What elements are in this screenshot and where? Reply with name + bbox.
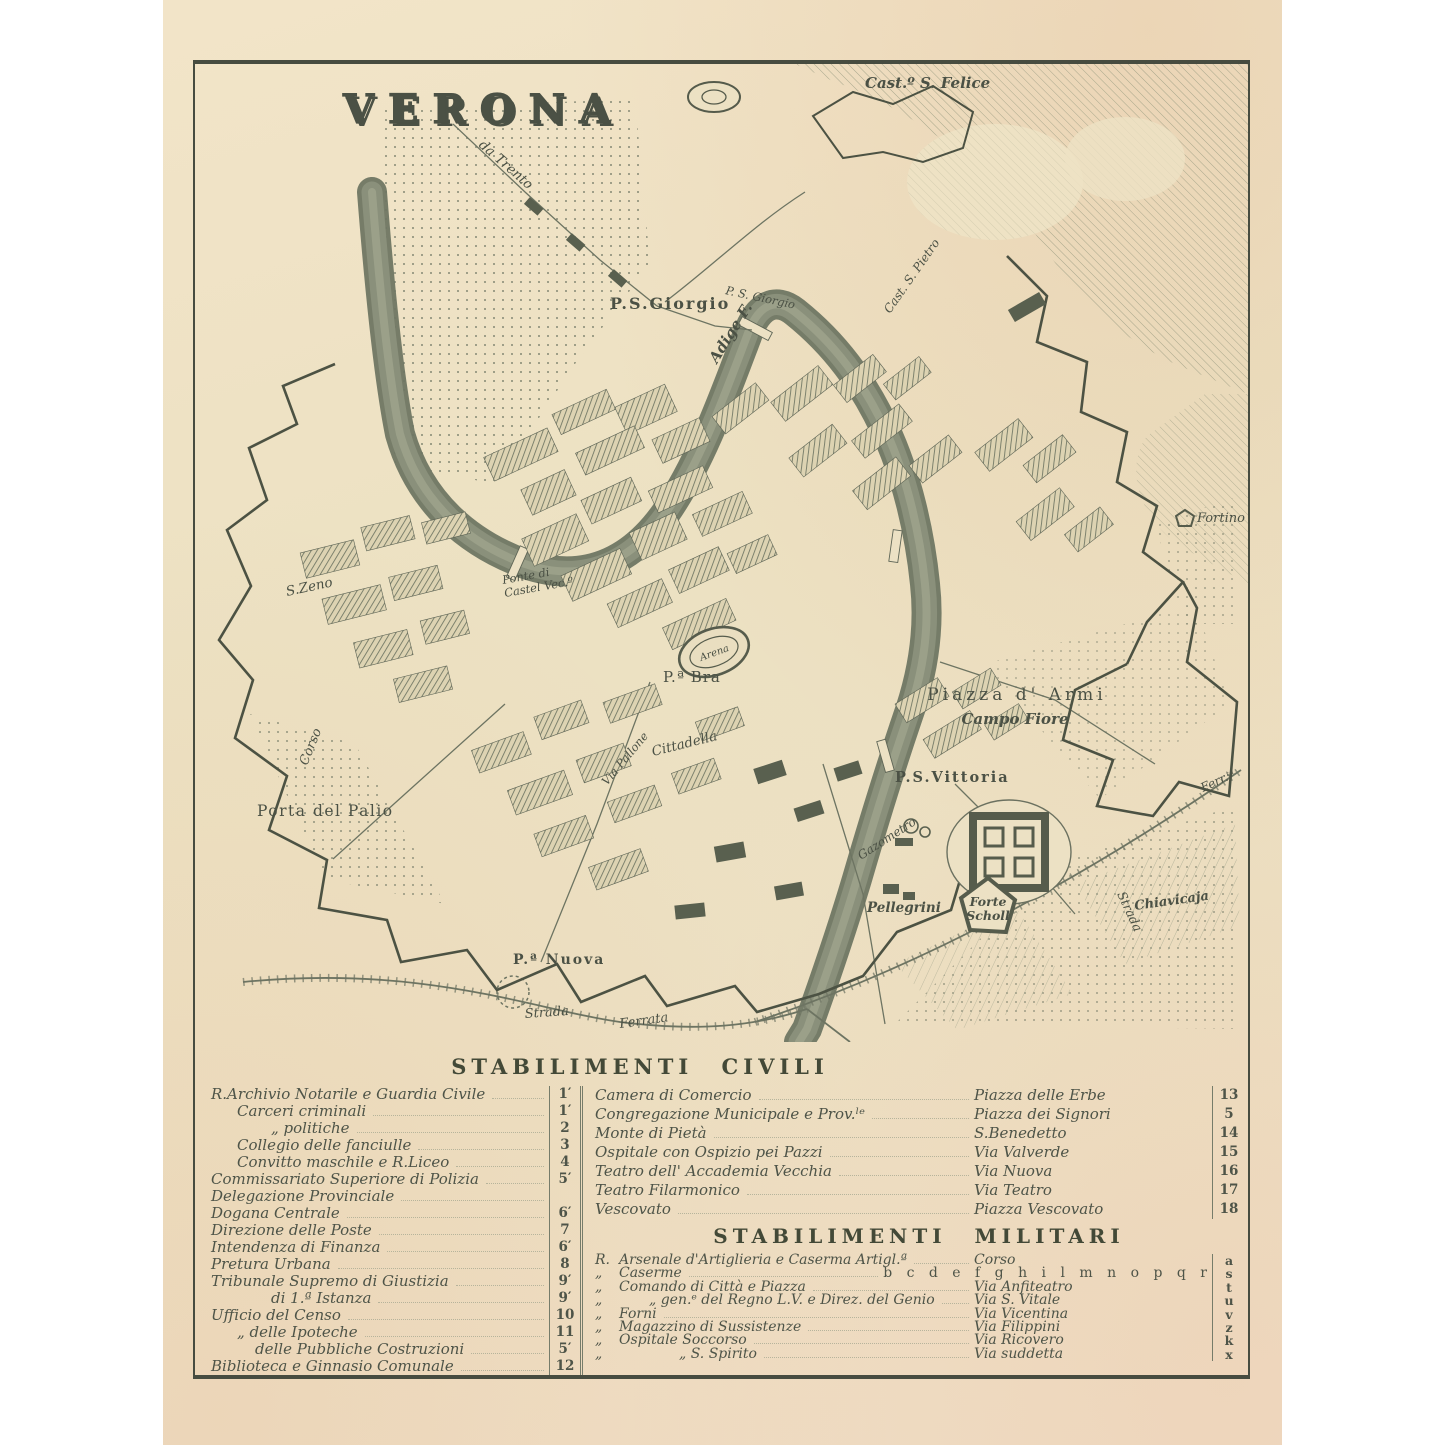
legend-row: Delegazione Provinciale: [211, 1188, 583, 1205]
map-label-fortino: Fortino: [1196, 511, 1245, 526]
dotted-leader: [357, 1132, 544, 1133]
map-label-campo-fiore: Campo Fiore: [961, 710, 1068, 728]
legend-item-label: di 1.ª Istanza: [211, 1290, 371, 1307]
dotted-leader: [678, 1213, 969, 1214]
legend-item-label: Carceri criminali: [211, 1103, 366, 1120]
legend-item-number: 9′: [549, 1273, 583, 1290]
dotted-leader: [808, 1330, 969, 1331]
dotted-leader: [387, 1251, 544, 1252]
legend-row: Teatro FilarmonicoVia Teatro17: [595, 1181, 1245, 1200]
legend-row: Camera di ComercioPiazza delle Erbe13: [595, 1086, 1245, 1105]
legend-item-label: Commissariato Superiore di Polizia: [211, 1171, 479, 1188]
legend-item-number: 15: [1212, 1143, 1245, 1162]
legend-item-number: z: [1212, 1321, 1245, 1334]
dotted-leader: [689, 1276, 878, 1277]
dotted-leader: [418, 1149, 544, 1150]
dotted-leader: [664, 1317, 969, 1318]
legend-row: Biblioteca e Ginnasio Comunale12: [211, 1358, 583, 1375]
legend-item-label: Camera di Comercio: [595, 1086, 752, 1105]
legend-item-number: 3: [549, 1137, 583, 1154]
legend-item-place: Via suddetta: [974, 1348, 1212, 1361]
legend-item-label: R.Archivio Notarile e Guardia Civile: [211, 1086, 485, 1103]
dotted-leader: [401, 1200, 544, 1201]
legend-item-number: 12: [549, 1358, 583, 1375]
map-label-ps-giorgio: P.S.Giorgio: [610, 294, 730, 313]
dotted-leader: [813, 1290, 969, 1291]
legend-row: di 1.ª Istanza9′: [211, 1290, 583, 1307]
dotted-leader: [347, 1217, 544, 1218]
legend-item-number: a: [1212, 1254, 1245, 1267]
legend-item-number: [549, 1188, 583, 1205]
legend-item-label: Vescovato: [595, 1200, 671, 1219]
map-label-castel-s-felice: Cast.º S. Felice: [865, 74, 990, 92]
legend-item-label: Direzione delle Poste: [211, 1222, 372, 1239]
dotted-leader: [456, 1285, 544, 1286]
legend-item-prefix: „: [595, 1348, 619, 1361]
map-label-s-zeno: S.Zeno: [285, 574, 335, 599]
citadel-fort: [947, 800, 1071, 904]
map-label-porta-del-palio: Porta del Palio: [257, 802, 394, 820]
legend-item-place: Via Nuova: [974, 1162, 1212, 1181]
legend-row: „„ gen.ᵉ del Regno L.V. e Direz. del Gen…: [595, 1294, 1245, 1307]
legend-item-number: 9′: [549, 1290, 583, 1307]
dotted-leader: [379, 1234, 544, 1235]
legend-row: Dogana Centrale6′: [211, 1205, 583, 1222]
legend-item-label: Delegazione Provinciale: [211, 1188, 394, 1205]
legend-item-number: 5: [1212, 1105, 1245, 1124]
legend-item-place: Piazza dei Signori: [974, 1105, 1212, 1124]
legend-item-label: Dogana Centrale: [211, 1205, 340, 1222]
map-label-cast-s-pietro: Cast. S. Pietro: [881, 236, 942, 315]
legend-item-number: 1′: [549, 1103, 583, 1120]
legend-row: Pretura Urbana8: [211, 1256, 583, 1273]
dotted-leader: [461, 1370, 544, 1371]
dotted-leader: [373, 1115, 544, 1116]
legend-item-label: „ S. Spirito: [619, 1348, 757, 1361]
dotted-leader: [338, 1268, 544, 1269]
legend-item-label: Monte di Pietà: [595, 1124, 707, 1143]
legend-item-place: Piazza Vescovato: [974, 1200, 1212, 1219]
legend-item-number: u: [1212, 1294, 1245, 1307]
dotted-leader: [747, 1194, 969, 1195]
legend-item-label: Pretura Urbana: [211, 1256, 331, 1273]
legend-row: delle Pubbliche Costruzioni5′: [211, 1341, 583, 1358]
map-frame: Arena VERONA VERONA Cast.º S. Felice da …: [193, 60, 1250, 1379]
dotted-leader: [456, 1166, 544, 1167]
legend-item-label: Congregazione Municipale e Prov.ˡᵉ: [595, 1105, 865, 1124]
legend-item-number: 17: [1212, 1181, 1245, 1200]
civil-section-title: STABILIMENTI CIVILI: [315, 1054, 965, 1079]
legend-item-label: delle Pubbliche Costruzioni: [211, 1341, 464, 1358]
scanned-map-page: Arena VERONA VERONA Cast.º S. Felice da …: [0, 0, 1445, 1445]
legend: STABILIMENTI CIVILI R.Archivio Notarile …: [195, 1042, 1248, 1375]
map-label-forte-scholl-2: Scholl: [966, 908, 1010, 923]
legend-item-number: 10: [549, 1307, 583, 1324]
legend-item-label: Ufficio del Censo: [211, 1307, 341, 1324]
legend-item-number: 16: [1212, 1162, 1245, 1181]
legend-item-place: Piazza delle Erbe: [974, 1086, 1212, 1105]
legend-item-number: 6′: [549, 1205, 583, 1222]
map-label-forte-scholl-1: Forte: [969, 894, 1007, 909]
legend-item-label: „ delle Ipoteche: [211, 1324, 358, 1341]
dotted-leader: [830, 1156, 969, 1157]
dotted-leader: [471, 1353, 544, 1354]
legend-row: Commissariato Superiore di Polizia5′: [211, 1171, 583, 1188]
legend-item-number: 5′: [549, 1171, 583, 1188]
map-label-cittadella: Cittadella: [650, 728, 719, 760]
legend-row: Carceri criminali1′: [211, 1103, 583, 1120]
legend-row: Tribunale Supremo di Giustizia9′: [211, 1273, 583, 1290]
dotted-leader: [348, 1319, 544, 1320]
legend-item-number: 4: [549, 1154, 583, 1171]
dotted-leader: [764, 1357, 969, 1358]
legend-item-label: Intendenza di Finanza: [211, 1239, 380, 1256]
map-label-piazza-d-armi: Piazza d' Armi: [927, 685, 1106, 705]
legend-item-number: 7: [549, 1222, 583, 1239]
dotted-leader: [872, 1118, 969, 1119]
map-label-p-nuova: P.ª Nuova: [513, 952, 605, 968]
legend-row: „ delle Ipoteche11: [211, 1324, 583, 1341]
legend-item-label: „ gen.ᵉ del Regno L.V. e Direz. del Geni…: [619, 1294, 935, 1307]
legend-civil-left-column: R.Archivio Notarile e Guardia Civile1′ C…: [211, 1086, 583, 1375]
legend-civil-right-column: Camera di ComercioPiazza delle Erbe13 Co…: [595, 1086, 1245, 1219]
legend-item-place: Via Valverde: [974, 1143, 1212, 1162]
legend-item-place: S.Benedetto: [974, 1124, 1212, 1143]
legend-row: Collegio delle fanciulle3: [211, 1137, 583, 1154]
legend-item-label: Ospitale con Ospizio pei Pazzi: [595, 1143, 823, 1162]
legend-row: Congregazione Municipale e Prov.ˡᵉPiazza…: [595, 1105, 1245, 1124]
map-label-pellegrini: Pellegrini: [866, 900, 941, 916]
legend-item-number: k: [1212, 1334, 1245, 1347]
legend-row: Intendenza di Finanza6′: [211, 1239, 583, 1256]
legend-row: Ufficio del Censo10: [211, 1307, 583, 1324]
map-label-ferrata-right: Ferr.ᵗᵃ: [1197, 767, 1237, 795]
legend-item-number: s: [1212, 1267, 1245, 1280]
legend-row: Ospitale con Ospizio pei PazziVia Valver…: [595, 1143, 1245, 1162]
legend-item-label: Biblioteca e Ginnasio Comunale: [211, 1358, 454, 1375]
legend-item-label: Collegio delle fanciulle: [211, 1137, 411, 1154]
map-title: VERONA: [342, 86, 624, 133]
dotted-leader: [754, 1343, 969, 1344]
legend-item-number: 11: [549, 1324, 583, 1341]
dotted-leader: [839, 1175, 969, 1176]
dotted-leader: [378, 1302, 544, 1303]
legend-row: Convitto maschile e R.Liceo4: [211, 1154, 583, 1171]
dotted-leader: [942, 1303, 969, 1304]
legend-item-number: 14: [1212, 1124, 1245, 1143]
map-label-strada-ferrata-1: Strada: [524, 1004, 569, 1022]
military-section-title: STABILIMENTI MILITARI: [595, 1224, 1243, 1248]
legend-military-column: R.Arsenale d'Artiglieria e Caserma Artig…: [595, 1254, 1245, 1361]
legend-row: VescovatoPiazza Vescovato18: [595, 1200, 1245, 1219]
legend-row: Monte di PietàS.Benedetto14: [595, 1124, 1245, 1143]
legend-row: Teatro dell' Accademia VecchiaVia Nuova1…: [595, 1162, 1245, 1181]
legend-item-number: 5′: [549, 1341, 583, 1358]
legend-item-label: Tribunale Supremo di Giustizia: [211, 1273, 449, 1290]
map-label-ps-vittoria: P.S.Vittoria: [895, 769, 1010, 786]
legend-item-label: „ politiche: [211, 1120, 350, 1137]
legend-item-label: Convitto maschile e R.Liceo: [211, 1154, 449, 1171]
legend-item-number: v: [1212, 1308, 1245, 1321]
legend-item-number: 1′: [549, 1086, 583, 1103]
legend-item-number: 8: [549, 1256, 583, 1273]
legend-item-number: 2: [549, 1120, 583, 1137]
paper-sheet: Arena VERONA VERONA Cast.º S. Felice da …: [163, 0, 1282, 1445]
dotted-leader: [492, 1098, 544, 1099]
legend-item-number: 13: [1212, 1086, 1245, 1105]
legend-item-number: 6′: [549, 1239, 583, 1256]
hills-hatching: [688, 64, 1248, 584]
map-label-strada-ferrata-2: Ferrata: [617, 1010, 669, 1032]
legend-row: „ politiche2: [211, 1120, 583, 1137]
legend-row: Direzione delle Poste7: [211, 1222, 583, 1239]
legend-item-number: 18: [1212, 1200, 1245, 1219]
legend-item-place: Via Teatro: [974, 1181, 1212, 1200]
legend-item-label: Teatro Filarmonico: [595, 1181, 740, 1200]
verona-map: Arena VERONA VERONA Cast.º S. Felice da …: [195, 64, 1248, 1042]
dotted-leader: [714, 1137, 969, 1138]
dotted-leader: [914, 1263, 969, 1264]
map-label-pa-bra: P.ª Bra: [663, 668, 721, 686]
legend-row: „„ S. SpiritoVia suddettax: [595, 1348, 1245, 1361]
legend-item-number: t: [1212, 1281, 1245, 1294]
dotted-leader: [365, 1336, 544, 1337]
legend-item-label: Teatro dell' Accademia Vecchia: [595, 1162, 832, 1181]
dotted-leader: [486, 1183, 544, 1184]
dotted-leader: [759, 1099, 969, 1100]
legend-row: R.Archivio Notarile e Guardia Civile1′: [211, 1086, 583, 1103]
legend-item-number: x: [1212, 1348, 1245, 1361]
